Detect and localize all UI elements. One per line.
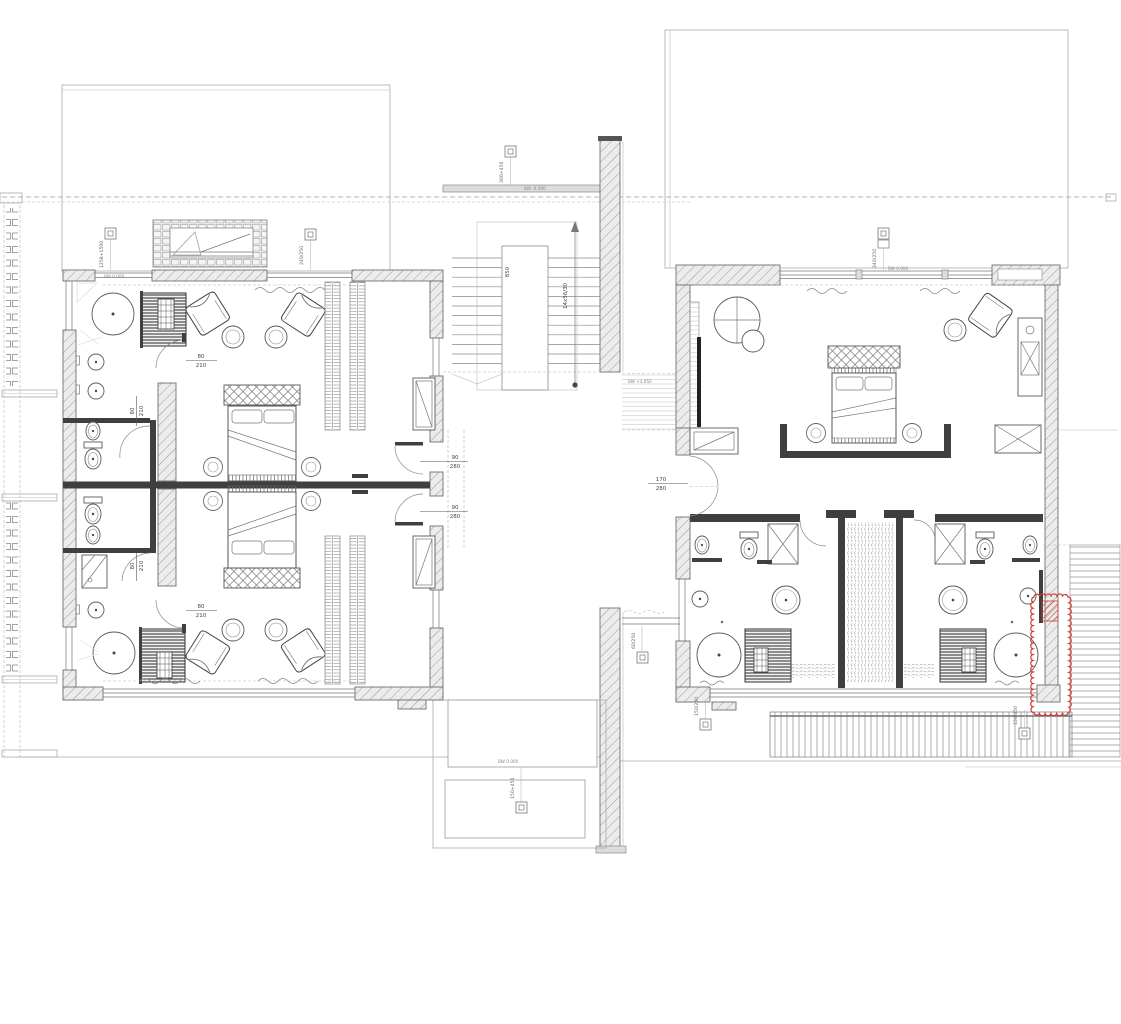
window-tag-stair: 300+450 [499,146,516,185]
left-wing [63,220,443,709]
suite2-sauna [139,627,185,684]
revision-marker [1042,601,1058,621]
stair-core [433,136,680,853]
bath-left-basin [772,586,800,614]
suite2-ottoman-1 [222,619,244,641]
master-ottoman [944,319,966,341]
master-nightstand-left [807,424,826,443]
door-w: 170 [656,477,667,483]
suite1-armchair-2 [280,291,326,337]
window-tag-pool-text: 150+450 [510,778,516,799]
suite1-armchair-1 [185,291,231,337]
suite1-bed [204,385,321,481]
suite2-wc-door [122,553,150,581]
bath-left-bidet [695,536,709,554]
suite2-toilet [84,497,102,524]
suite2-bed [204,486,321,588]
door-w: 80 [130,407,136,414]
suite1-sink-1 [88,354,104,370]
suite1-bidet [86,422,100,440]
floor-plan-drawing: 80 210 80 210 80 210 80 210 90 280 90 28… [0,0,1121,1024]
bath-left-toilet [740,532,758,559]
suite2-armchair-2 [280,627,326,673]
window-tag-deck-right-text: 150/250 [1013,706,1019,725]
suite2-entry-door [395,494,423,522]
door-label-80-210-s1: 80 210 [186,354,217,369]
stair-east-wall [600,140,620,372]
door-w: 80 [198,604,205,610]
window-tag-stair-text: 300+450 [499,162,505,183]
suite2-bidet [86,526,100,544]
lower-terrace [448,700,597,767]
door-h: 210 [196,363,207,369]
door-w: 80 [130,562,136,569]
bath-right-door [914,520,935,544]
suite1-bed-headboard [224,385,300,405]
window-tag-left-mid-text: 240/250 [299,246,305,265]
suite1-entry-door [395,446,423,474]
right-wing [676,265,1060,710]
master-curtain-1 [807,289,847,294]
door-label-80-210-s2-wc: 80 210 [130,551,145,581]
window-tag-bridge: 60/250 [631,633,648,663]
master-shower-skylight [995,425,1041,453]
suite1-sauna [140,291,186,348]
window-tag-right: 240/250 [872,228,889,270]
suite1-wc-door [120,426,150,458]
door-h: 280 [656,486,667,492]
door-h: 210 [196,613,207,619]
outdoor-fireplace [153,220,267,267]
master-round-table [714,297,764,352]
suite1-seating [185,291,327,348]
suite1-curtain [255,288,325,293]
suite1-nightstand-right [302,458,321,477]
bath-right [935,524,1040,685]
window-tag-bridge-text: 60/250 [631,633,637,649]
door-h: 210 [139,405,145,416]
master-vanity [1018,318,1042,396]
suite1-nightstand-left [204,458,223,477]
stair-run-label: 14x56/30 [563,282,569,309]
suite2-bathroom [76,497,150,674]
door-h: 280 [450,464,461,470]
suite2-ottoman-2 [265,619,287,641]
door-h: 210 [139,560,145,571]
door-w: 80 [198,354,205,360]
suite2-bed-bench [228,486,296,492]
suite2-window-seat [413,536,435,588]
door-w: 90 [452,505,459,511]
suite1-ottoman-1 [222,326,244,348]
suite2-nightstand-left [204,492,223,511]
bath-right-toilet [976,532,994,559]
level-stair-top: BW -0.500 [524,186,546,191]
window-tag-left: 1258+1500 [99,228,116,270]
suite2-wardrobes [325,536,365,684]
master-bench [690,428,738,454]
level-bridge: BW +3.050 [628,379,652,384]
master-curtain-2 [920,289,960,294]
suite1-toilet [84,442,102,469]
suite1-wardrobes [325,282,365,430]
suite2-nightstand-right [302,492,321,511]
stair-width-label: 850 [505,266,511,277]
suite2-bed-headboard [224,568,300,588]
bath-right-basin [939,586,967,614]
window-tag-deck-left-text: 150/250 [694,697,700,716]
level-right-bedroom: BW 0.000 [888,266,909,271]
suite1-bed-bench [228,475,296,481]
terrace-right-outline [665,30,1068,268]
door-label-80-210-s2: 80 210 [186,604,217,619]
door-w: 90 [452,455,459,461]
bath-left-sink [692,591,708,607]
window-tag-right-text: 240/250 [872,249,878,268]
master-nightstand-right [903,424,922,443]
master-wardrobe-panel [690,302,701,428]
level-pool-terrace: BW 0.000 [498,759,519,764]
master-bed-headboard [828,346,900,368]
stair-core-lower-wall [600,608,620,852]
master-armchair [967,292,1014,339]
suite1-bathroom [76,283,150,469]
bath-right-bidet [1023,536,1037,554]
stair-direction-arrow [571,221,579,232]
bath-left [692,524,800,685]
bath-left-door [800,520,826,546]
suite2-seating [185,619,327,675]
door-label-170-280: 170 280 [648,477,688,492]
pergola-louvers-top [6,208,18,386]
door-label-90-280-s1: 90 280 [420,455,468,470]
floor-plan-page: 80 210 80 210 80 210 80 210 90 280 90 28… [0,0,1121,1024]
suite2-bath-door [156,600,184,628]
level-left-bedroom: BW 0.000 [104,274,125,279]
pergola-louvers-bottom [6,498,18,678]
suite2-shower [82,555,107,588]
window-tag-left-text: 1258+1500 [99,241,105,268]
suite2-sink [88,602,104,618]
master-bed [807,346,922,443]
suite1-window-seat [413,378,435,430]
master-entry-doors [690,456,718,516]
door-label-90-280-s2: 90 280 [420,505,468,520]
window-tag-left-mid: 240/250 [299,229,316,270]
suite1-sink-2 [88,383,104,399]
door-h: 280 [450,514,461,520]
suite1-ottoman-2 [265,326,287,348]
